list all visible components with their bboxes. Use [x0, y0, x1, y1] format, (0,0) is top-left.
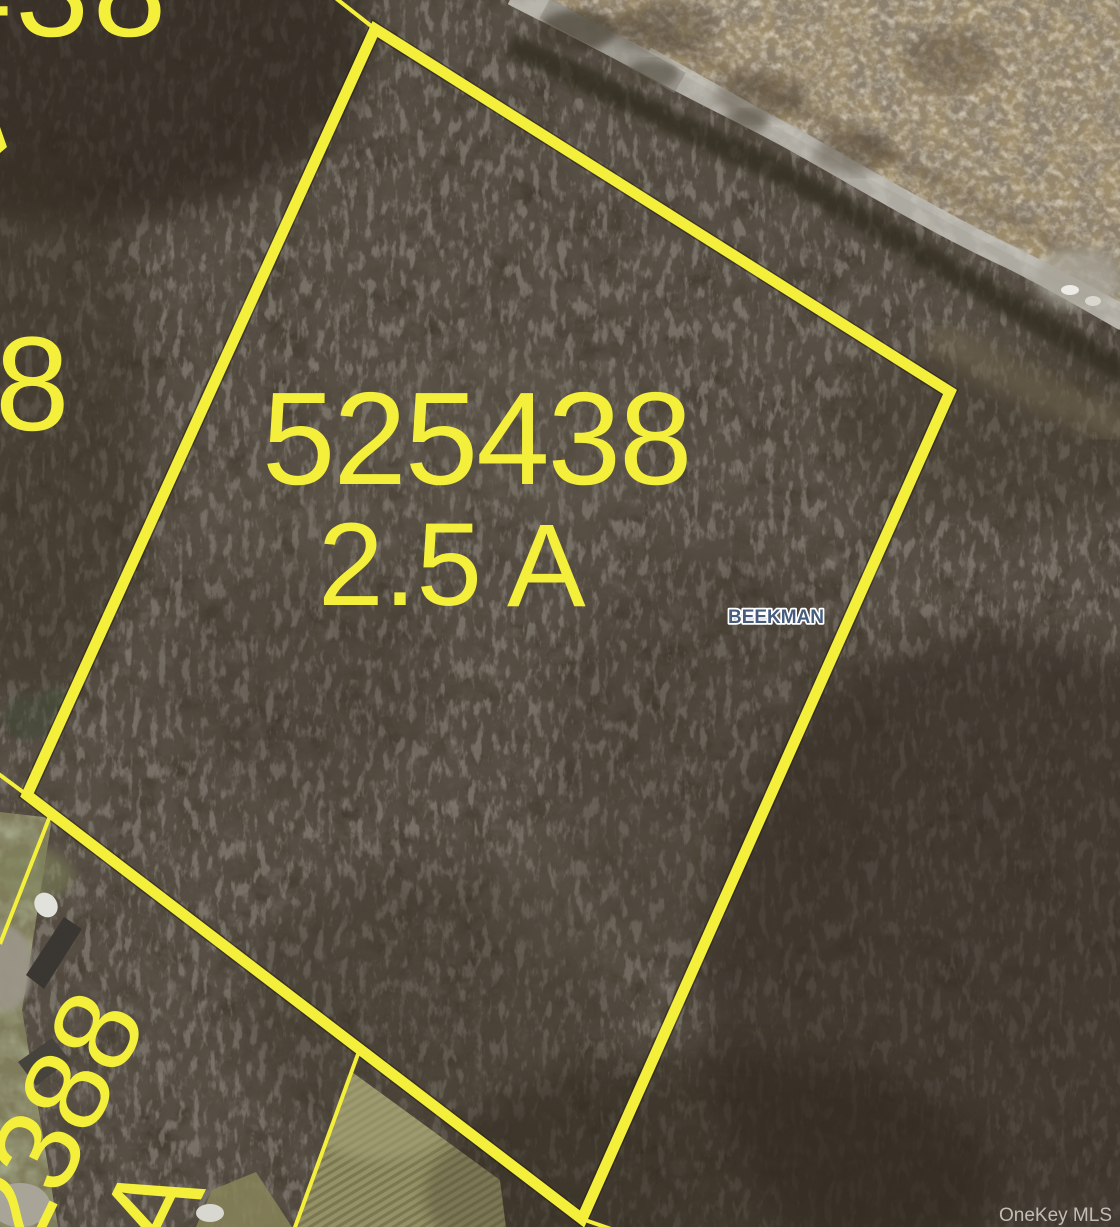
svg-text:438: 438: [0, 0, 170, 64]
svg-text:2.5: 2.5: [318, 499, 482, 631]
svg-text:A: A: [507, 500, 586, 632]
svg-text:OneKey MLS: OneKey MLS: [999, 1205, 1112, 1226]
svg-text:525438: 525438: [262, 365, 690, 512]
svg-text:8: 8: [0, 310, 70, 459]
svg-text:BEEKMAN: BEEKMAN: [728, 607, 824, 628]
